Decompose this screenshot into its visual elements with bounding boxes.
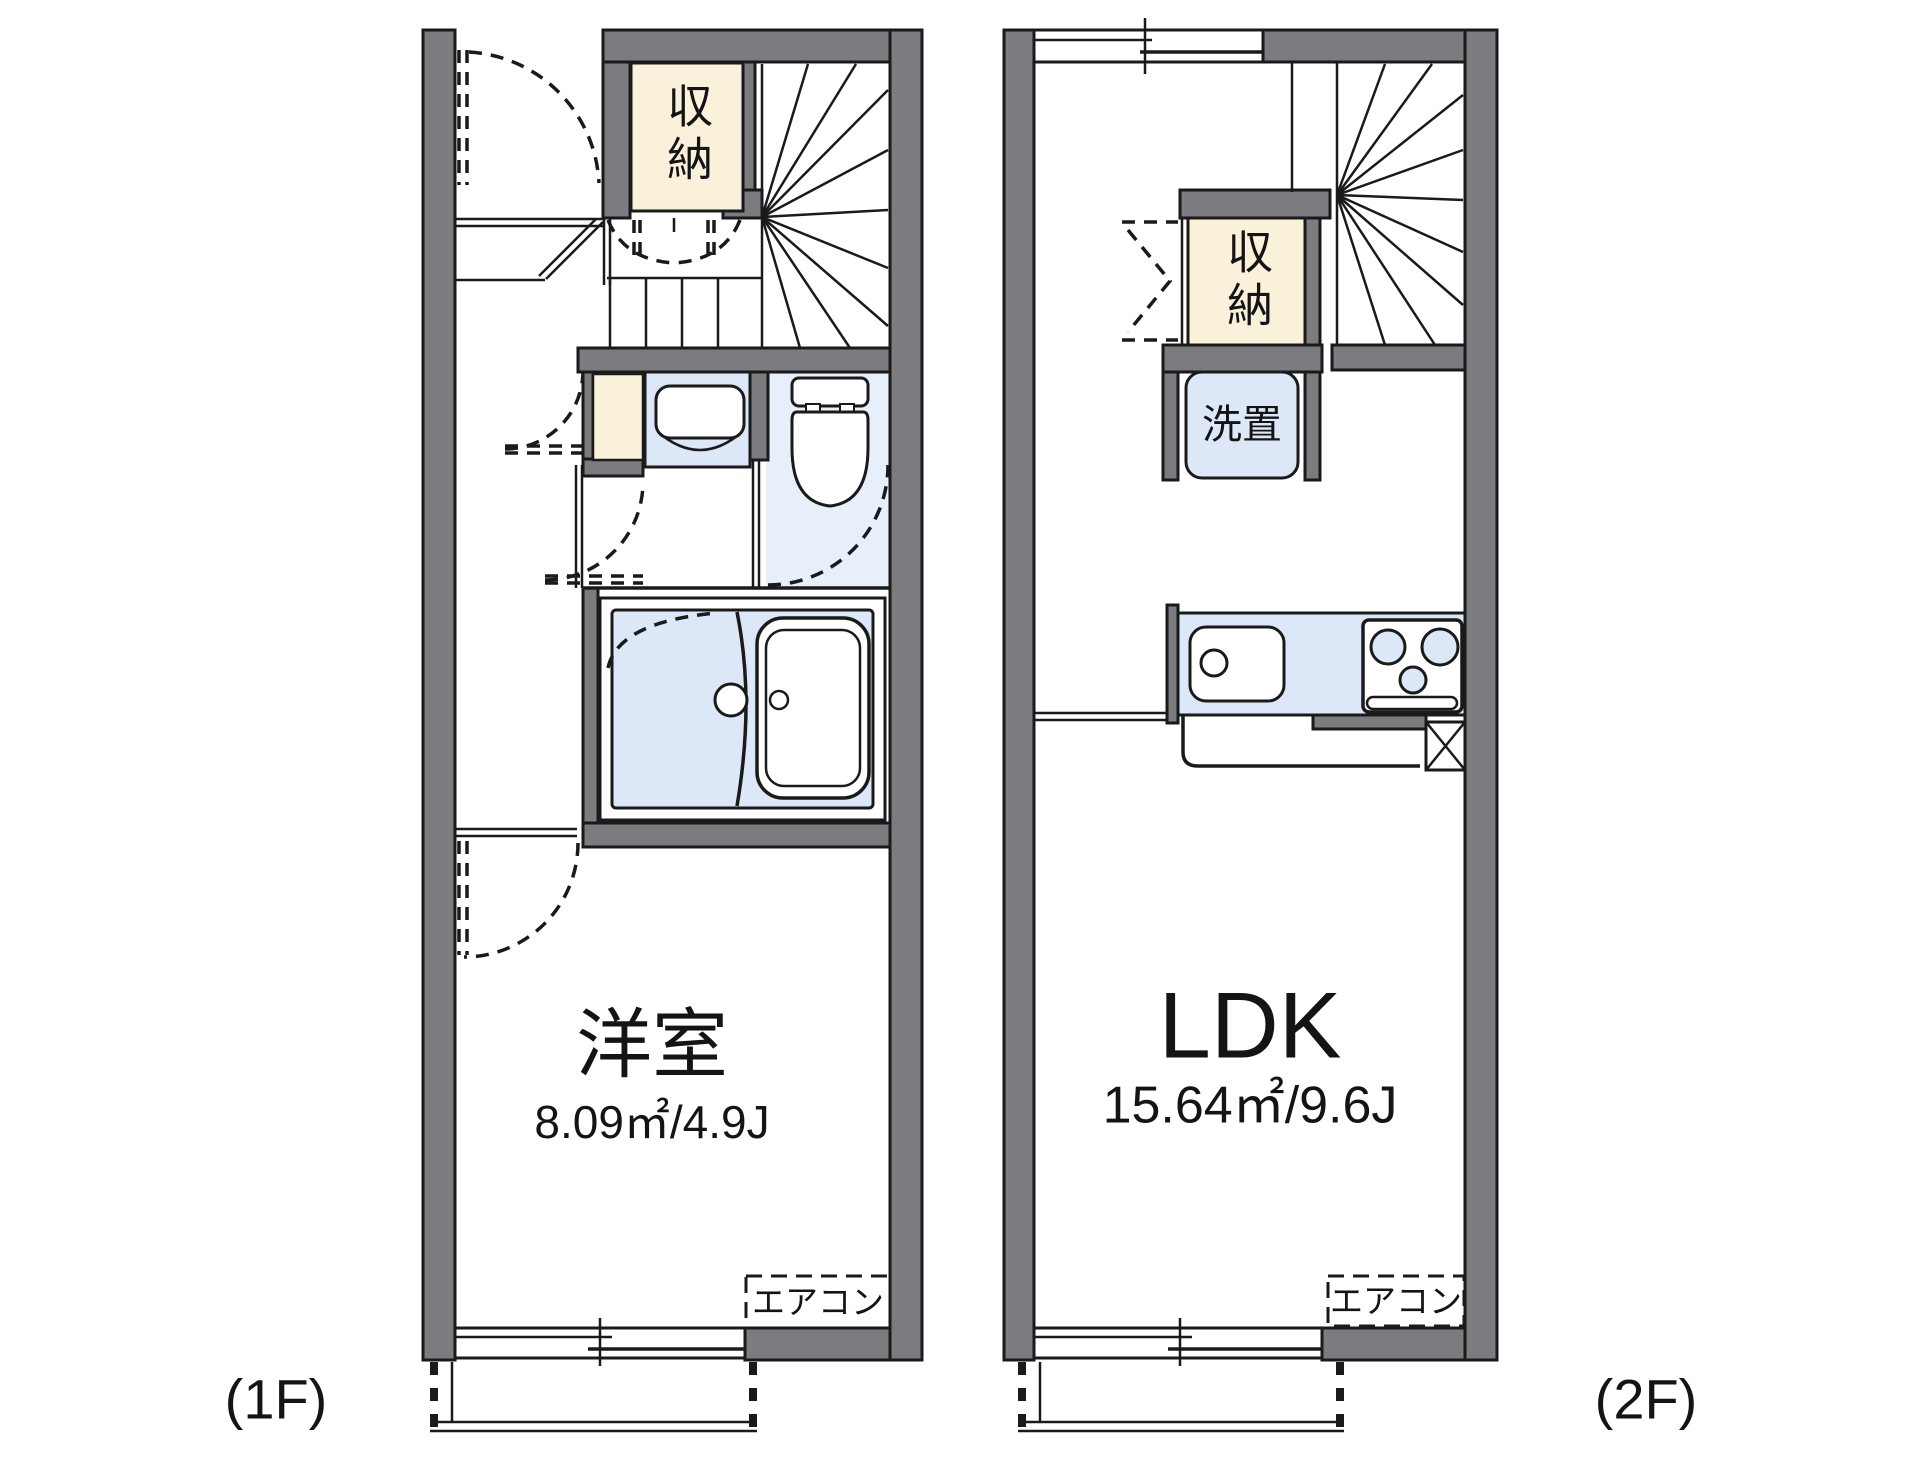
room-label-2f: LDK: [1159, 977, 1342, 1076]
kitchen-2f: [1034, 613, 1465, 770]
aircon-label-1f: エアコン: [752, 1286, 884, 1321]
closet-doors-2f: [1122, 222, 1178, 340]
floorplan-page: 収納 洋室 8.09㎡/4.9J エアコン (1F) 収納 洗置 LDK 15.…: [0, 0, 1920, 1459]
closet-label-2f: 収納: [1223, 228, 1271, 334]
room-area-1f: 8.09㎡/4.9J: [534, 1098, 769, 1146]
kitchen-sink-2f: [1190, 627, 1284, 701]
closet-label-1f: 収納: [663, 82, 711, 188]
toilet-fixture-1f: [792, 378, 868, 506]
window-top-2f: [1034, 18, 1263, 74]
bathroom-1f: [600, 598, 885, 820]
aircon-label-2f: エアコン: [1330, 1285, 1462, 1320]
entrance-1f: [455, 50, 610, 285]
floor-plan-1f: [423, 30, 922, 1431]
entrance-door-1f: [459, 50, 599, 185]
floor-caption-1f: (1F): [225, 1371, 328, 1430]
kitchen-stove-2f: [1363, 620, 1462, 712]
window-2f: [1034, 1318, 1322, 1366]
floor-caption-2f: (2F): [1595, 1371, 1698, 1430]
closet-2f: [1122, 218, 1305, 345]
balcony-2f: [1018, 1362, 1344, 1431]
washroom-door-1f: [505, 371, 583, 453]
bathtub-1f: [757, 618, 869, 798]
pipe-space-2f: [1426, 722, 1465, 770]
vanity-1f: [593, 372, 750, 467]
laundry-label-2f: 洗置: [1202, 404, 1282, 446]
room-area-2f: 15.64㎡/9.6J: [1103, 1079, 1398, 1134]
window-1f: [455, 1318, 745, 1366]
floorplan-drawing: [0, 0, 1920, 1459]
washroom-door2-1f: [545, 482, 643, 583]
bedroom-door-1f: [455, 829, 578, 957]
closet-doors-1f: [608, 218, 740, 263]
room-label-1f: 洋室: [576, 1006, 728, 1086]
terrace-1f: [430, 1362, 757, 1431]
